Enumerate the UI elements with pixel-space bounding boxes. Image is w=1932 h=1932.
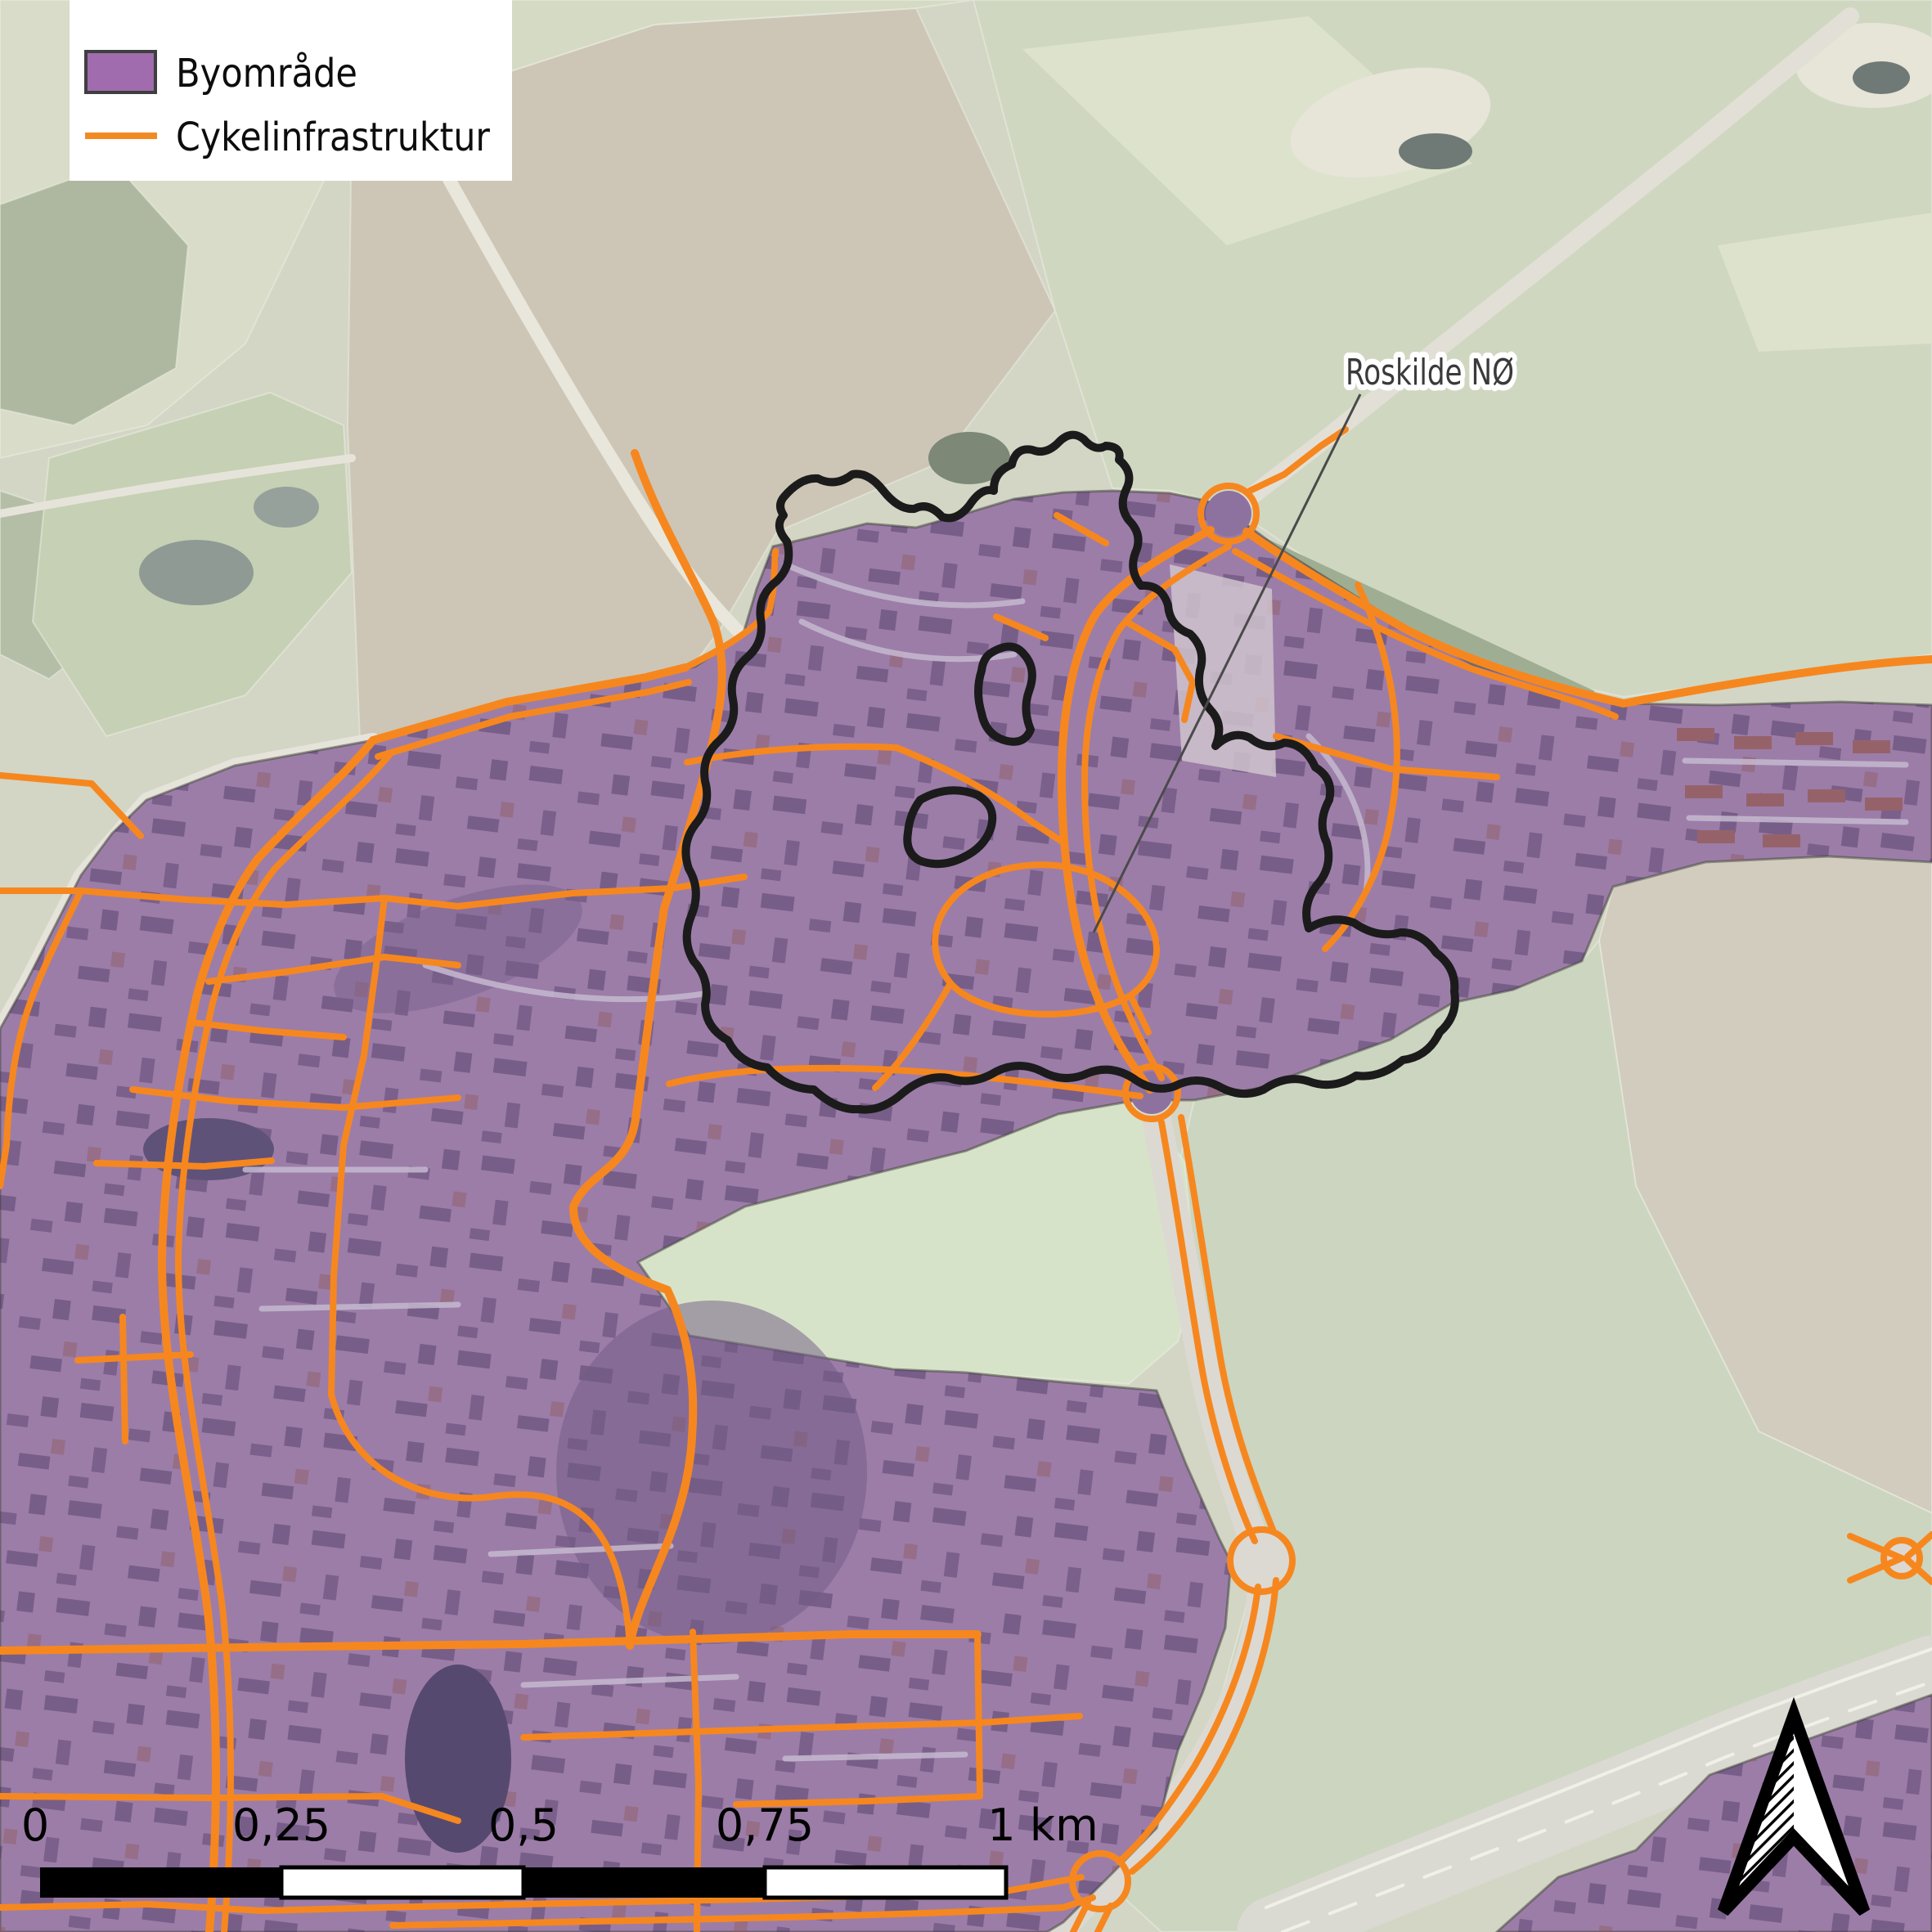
legend-label-byomrade: Byområde xyxy=(176,51,357,97)
scale-label-05: 0,5 xyxy=(488,1799,559,1851)
scale-label-1km: 1 km xyxy=(987,1799,1098,1851)
annotation-label: Roskilde NØ xyxy=(1346,352,1514,393)
marsh-dark-patch xyxy=(556,1301,867,1644)
scale-label-025: 0,25 xyxy=(232,1799,330,1851)
roundabout-road-mid xyxy=(1233,1533,1289,1588)
pond-ne xyxy=(1399,133,1472,169)
scale-segment-1 xyxy=(40,1867,281,1898)
legend-label-cykelinfrastruktur: Cykelinfrastruktur xyxy=(176,115,490,160)
scale-label-0: 0 xyxy=(21,1799,49,1851)
scale-segment-4 xyxy=(765,1867,1006,1898)
pond-west xyxy=(139,540,254,605)
scale-segment-2 xyxy=(281,1867,523,1898)
map-canvas[interactable]: Roskilde NØ Byområde Cykelinfrastruktur … xyxy=(0,0,1932,1932)
legend-swatch-byomrade xyxy=(86,52,155,92)
pond-west-2 xyxy=(254,487,319,528)
legend: Byområde Cykelinfrastruktur xyxy=(70,0,512,181)
scale-segment-3 xyxy=(523,1867,765,1898)
pond-ne-2 xyxy=(1853,61,1910,94)
scale-label-075: 0,75 xyxy=(716,1799,814,1851)
